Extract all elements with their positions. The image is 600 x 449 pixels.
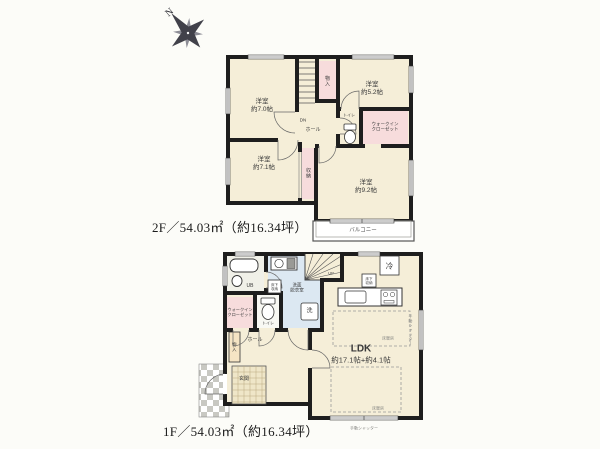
wic-2f-line2: クローゼット bbox=[372, 127, 399, 132]
room-bedroom-nw-name: 洋室 bbox=[251, 98, 273, 106]
shutter-right-label: 手動シャッター bbox=[408, 314, 413, 346]
entrance-label: 玄関 bbox=[239, 376, 249, 382]
room-bedroom-ne: 洋室 約5.2帖 bbox=[361, 81, 383, 97]
closet-top-2f-label: 物入 bbox=[324, 76, 330, 87]
washer-label: 洗 bbox=[306, 308, 312, 315]
stairs-dn-label: DN bbox=[300, 117, 307, 122]
room-bedroom-se-name: 洋室 bbox=[355, 179, 377, 187]
room-bedroom-w-size: 約7.1帖 bbox=[253, 164, 275, 172]
floor-heating-1-label: 床暖房 bbox=[382, 337, 394, 342]
wic-1f-label: ウォークイン クローゼット bbox=[227, 307, 252, 317]
shutter-bottom-label: 手動シャッター bbox=[350, 426, 378, 431]
underfloor-kitchen-line2: 収納 bbox=[366, 281, 373, 285]
ldk-name: LDK bbox=[331, 344, 390, 356]
ldk-size: 約17.1帖+約4.1帖 bbox=[331, 356, 390, 365]
underfloor-storage-kitchen-label: 床下 収納 bbox=[366, 276, 373, 284]
washroom-label: 洗面 脱衣室 bbox=[290, 283, 304, 294]
underfloor-storage-wash-label: 床下 収納 bbox=[271, 282, 278, 290]
toilet-1f-label: トイレ bbox=[262, 321, 274, 326]
stairs-up-label: UP bbox=[328, 271, 334, 276]
room-bedroom-ne-name: 洋室 bbox=[361, 81, 383, 89]
room-toilet-2f-label: トイレ bbox=[343, 114, 355, 119]
closet-mid-2f-label: 収納 bbox=[305, 168, 311, 179]
floor-1f-area-label: 1F／54.03㎡（約16.34坪） bbox=[163, 421, 319, 440]
room-bedroom-w: 洋室 約7.1帖 bbox=[253, 156, 275, 172]
room-wic-2f: ウォークイン クローゼット bbox=[372, 122, 399, 133]
floorplan-page: { "colors": { "wall": "#1e1e1e", "room_f… bbox=[0, 0, 600, 449]
room-bedroom-se-size: 約9.2帖 bbox=[355, 187, 377, 195]
hall-2f-label: ホール bbox=[305, 127, 320, 133]
room-bedroom-ne-size: 約5.2帖 bbox=[361, 89, 383, 97]
room-bedroom-w-name: 洋室 bbox=[253, 156, 275, 164]
washroom-line2: 脱衣室 bbox=[290, 288, 304, 293]
balcony-label: バルコニー bbox=[349, 228, 376, 235]
floor-2f-area-label: 2F／54.03㎡（約16.34坪） bbox=[152, 217, 308, 236]
room-bedroom-nw-size: 約7.0帖 bbox=[251, 106, 273, 114]
hall-1f-label: ホール bbox=[247, 337, 262, 343]
bath-ub-label: UB bbox=[247, 283, 254, 289]
fridge-label: 冷 bbox=[386, 261, 394, 270]
room-ldk-label: LDK 約17.1帖+約4.1帖 bbox=[331, 344, 390, 365]
underfloor-wash-line2: 収納 bbox=[271, 287, 278, 291]
floor-heating-2-label: 床暖房 bbox=[372, 407, 384, 412]
wic-1f-line2: クローゼット bbox=[227, 312, 252, 317]
room-bedroom-nw: 洋室 約7.0帖 bbox=[251, 98, 273, 114]
room-bedroom-se: 洋室 約9.2帖 bbox=[355, 179, 377, 195]
closet-1f-label: 物入 bbox=[232, 342, 237, 352]
floor-1f-plan: UB 洗面 脱衣室 床下 収納 トイレ ウォークイン クローゼット 物入 ホール… bbox=[195, 250, 425, 435]
